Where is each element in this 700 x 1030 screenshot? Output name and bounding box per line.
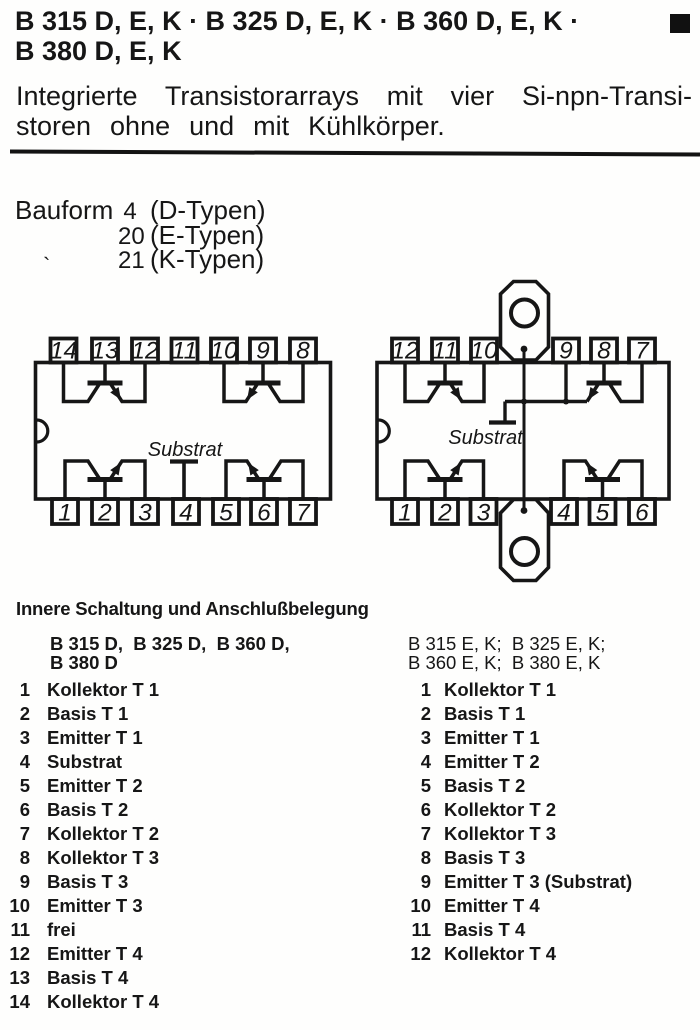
svg-text:8: 8 xyxy=(597,338,611,365)
svg-text:7: 7 xyxy=(635,338,650,365)
svg-text:4: 4 xyxy=(179,500,193,527)
svg-text:9: 9 xyxy=(256,338,270,365)
svg-text:2: 2 xyxy=(437,500,452,527)
svg-text:4: 4 xyxy=(557,500,571,527)
svg-text:Substrat: Substrat xyxy=(448,427,524,449)
svg-text:11: 11 xyxy=(172,338,197,365)
svg-text:12: 12 xyxy=(391,338,419,365)
svg-text:14: 14 xyxy=(50,338,77,365)
svg-text:13: 13 xyxy=(91,338,119,365)
svg-text:6: 6 xyxy=(257,500,271,527)
svg-text:9: 9 xyxy=(559,338,573,365)
svg-text:5: 5 xyxy=(596,500,610,527)
svg-text:8: 8 xyxy=(296,338,310,365)
svg-text:5: 5 xyxy=(219,500,233,527)
svg-text:10: 10 xyxy=(470,338,498,365)
svg-text:Substrat: Substrat xyxy=(148,439,224,461)
svg-text:1: 1 xyxy=(398,500,412,527)
svg-text:2: 2 xyxy=(97,500,112,527)
svg-text:6: 6 xyxy=(635,500,649,527)
svg-text:12: 12 xyxy=(131,338,159,365)
svg-text:10: 10 xyxy=(210,338,238,365)
svg-text:1: 1 xyxy=(58,500,72,527)
svg-text:11: 11 xyxy=(432,338,457,365)
svg-text:3: 3 xyxy=(477,500,491,527)
svg-text:7: 7 xyxy=(296,500,311,527)
svg-text:3: 3 xyxy=(138,500,152,527)
